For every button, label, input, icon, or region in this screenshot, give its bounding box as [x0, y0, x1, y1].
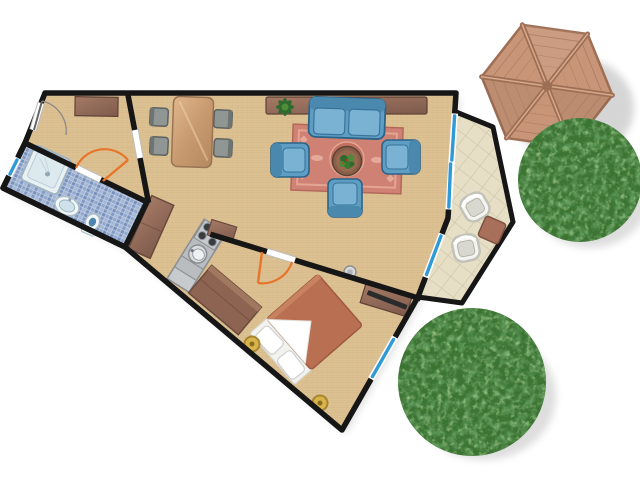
potted-plant [276, 98, 294, 116]
coffee-table [333, 147, 362, 176]
entry-console-cabinet [75, 97, 118, 117]
tree-foliage-light [398, 308, 546, 456]
terrace-slider-panel-2 [449, 164, 451, 207]
floor-plan-canvas [0, 0, 640, 500]
tree-bottom [398, 308, 556, 460]
tree-right [518, 118, 640, 248]
armchair-bottom [328, 179, 362, 217]
armchair-right [382, 140, 420, 174]
tree-foliage-light [518, 118, 640, 242]
armchair-left [271, 143, 309, 177]
gazebo-hub [542, 81, 552, 91]
floor-plan [0, 0, 640, 500]
sofa [308, 97, 385, 140]
patio-chair [451, 233, 482, 264]
dining-table [171, 96, 213, 167]
